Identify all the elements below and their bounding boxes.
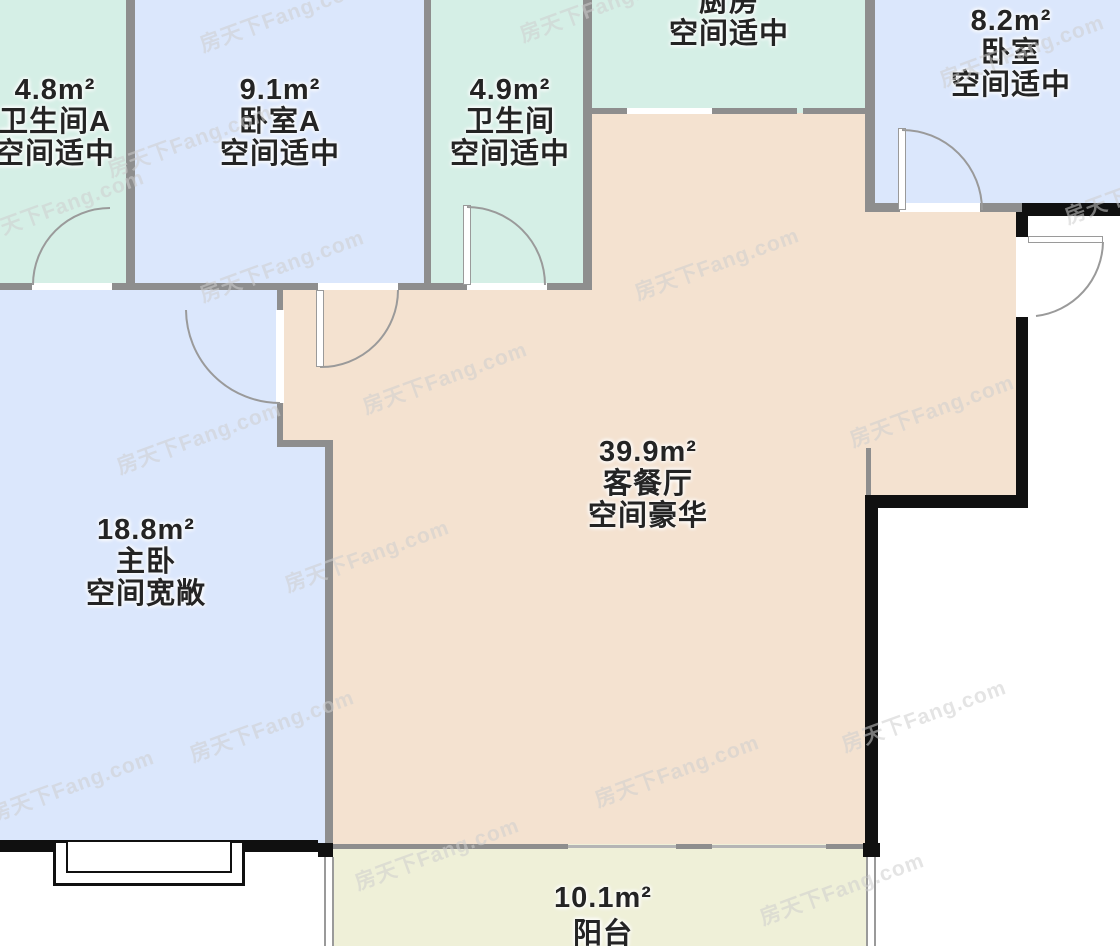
wall-exterior-segment <box>1022 203 1120 216</box>
room-label-living-dining: 39.9m² 客餐厅 空间豪华 <box>498 436 798 532</box>
room-name: 卫生间 <box>360 106 660 138</box>
room-name: 主卧 <box>0 546 296 578</box>
room-living-dining <box>333 500 872 848</box>
room-quality: 空间宽敞 <box>0 578 296 610</box>
room-quality: 空间适中 <box>360 138 660 170</box>
wall-exterior-segment <box>1016 317 1028 508</box>
balcony-slider-panel <box>333 844 568 849</box>
bay-window-inner <box>66 840 232 873</box>
wall-exterior-segment <box>863 843 880 857</box>
room-living-dining <box>865 212 1022 290</box>
room-area: 4.9m² <box>360 74 660 106</box>
room-name: 阳台 <box>453 916 753 946</box>
wall-segment <box>277 290 283 310</box>
room-name: 厨房 <box>579 0 879 18</box>
wall-segment <box>0 283 32 290</box>
room-name: 客餐厅 <box>498 468 798 500</box>
balcony-window <box>324 857 334 946</box>
wall-segment <box>875 203 900 212</box>
room-name: 卧室 <box>861 37 1120 69</box>
room-master-bedroom <box>0 283 283 447</box>
wall-segment <box>277 440 333 447</box>
wall-segment <box>866 448 871 498</box>
wall-segment <box>980 203 1022 212</box>
room-label-master-bedroom: 18.8m² 主卧 空间宽敞 <box>0 514 296 610</box>
wall-exterior-segment <box>318 843 333 857</box>
entry-door-arc <box>1036 242 1103 316</box>
room-area: 10.1m² <box>453 880 753 916</box>
wall-segment <box>112 283 318 290</box>
door-opening <box>32 283 112 290</box>
door-leaf <box>463 205 471 285</box>
wall-segment <box>325 447 333 845</box>
wall-segment <box>398 283 467 290</box>
room-label-balcony: 10.1m² 阳台 <box>453 880 753 946</box>
entry-door-leaf <box>1028 236 1103 243</box>
door-opening <box>276 310 284 403</box>
door-opening <box>318 283 398 290</box>
wall-exterior-segment <box>1016 212 1028 237</box>
door-opening <box>467 283 547 290</box>
room-label-bathroom: 4.9m² 卫生间 空间适中 <box>360 74 660 170</box>
floorplan: 4.8m² 卫生间A 空间适中 9.1m² 卧室A 空间适中 4.9m² 卫生间… <box>0 0 1120 946</box>
room-area: 39.9m² <box>498 436 798 468</box>
wall-exterior-segment <box>865 508 878 857</box>
wall-segment <box>712 108 797 114</box>
door-opening <box>900 203 980 212</box>
room-label-kitchen: 厨房 空间适中 <box>579 0 879 50</box>
door-leaf <box>898 128 906 210</box>
room-quality: 空间适中 <box>579 18 879 50</box>
door-leaf <box>316 290 324 367</box>
balcony-window <box>866 857 876 946</box>
wall-segment <box>547 283 592 290</box>
door-opening <box>1016 237 1028 317</box>
room-master-bedroom <box>0 440 333 852</box>
wall-exterior-segment <box>245 840 318 852</box>
wall-segment <box>803 108 865 114</box>
wall-exterior-segment <box>0 840 53 852</box>
room-area: 8.2m² <box>861 5 1120 37</box>
balcony-slider-panel <box>676 844 712 849</box>
room-quality: 空间豪华 <box>498 500 798 532</box>
wall-exterior-segment <box>865 495 1028 508</box>
room-living-dining <box>283 290 1022 447</box>
room-area: 18.8m² <box>0 514 296 546</box>
room-label-bedroom: 8.2m² 卧室 空间适中 <box>861 5 1120 101</box>
room-quality: 空间适中 <box>861 69 1120 101</box>
